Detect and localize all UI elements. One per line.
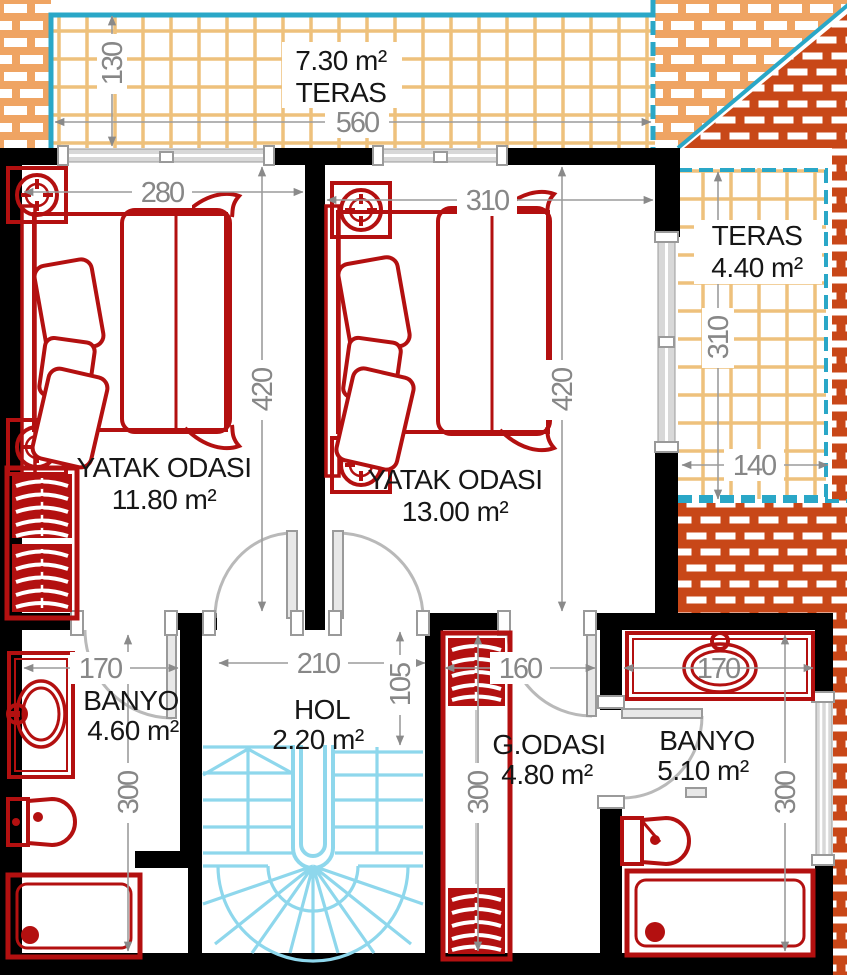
bathroom1-name: BANYO [83, 685, 179, 716]
bedroom1-area: 11.80 m² [112, 484, 217, 515]
dim-bathroom2-width: 170 [697, 653, 740, 685]
dim-hall-width: 210 [297, 648, 340, 680]
terrace-top-area: 7.30 m² [295, 45, 387, 76]
bathroom2-name: BANYO [659, 725, 755, 756]
dressing-room-name: G.ODASI [492, 729, 605, 760]
dim-bathroom1-depth: 300 [113, 771, 145, 814]
brick-strip-right-upper [832, 148, 847, 503]
floor-plan: 7.30 m² TERAS YATAK ODASI 11.80 m² YATAK… [0, 0, 847, 975]
dim-bedroom1-depth: 420 [247, 368, 279, 411]
dim-dressing-width: 160 [499, 653, 542, 685]
dim-terrace-top-depth: 130 [97, 42, 129, 85]
bedroom2-area: 13.00 m² [402, 496, 509, 527]
window-bedroom1-top [58, 146, 274, 165]
bathroom1-area: 4.60 m² [87, 715, 179, 746]
dim-bedroom2-width: 310 [466, 185, 509, 217]
window-bedroom2-top [373, 146, 507, 165]
dim-bedroom1-width: 280 [141, 177, 184, 209]
pillows-1 [30, 258, 109, 470]
toilet-2 [622, 818, 689, 864]
dim-terrace-right-depth: 310 [703, 316, 735, 359]
brick-area-top-left [0, 0, 51, 150]
hall-area: 2.20 m² [272, 724, 364, 755]
hall-name: HOL [294, 694, 350, 725]
stair-winder-rays [203, 866, 423, 953]
terrace-right-name: TERAS [712, 220, 803, 251]
dim-hall-depth: 105 [385, 663, 417, 706]
bedroom2-name: YATAK ODASI [368, 464, 543, 495]
window-bedroom2-terrace [655, 232, 678, 452]
brick-strip-right-lower [833, 616, 847, 975]
door-bedroom2 [329, 531, 429, 635]
terrace-top-name: TERAS [296, 77, 387, 108]
bedroom1-name: YATAK ODASI [77, 452, 252, 483]
bed-2 [326, 183, 554, 492]
bathroom2-area: 5.10 m² [657, 755, 749, 786]
staircase [203, 745, 423, 961]
stair-railing-inner [301, 745, 325, 856]
dim-terrace-right-width: 140 [733, 450, 776, 482]
terrace-right-area: 4.40 m² [711, 252, 803, 283]
bed-1 [8, 168, 239, 476]
dim-dressing-depth: 300 [463, 771, 495, 814]
dim-bedroom2-depth: 420 [547, 368, 579, 411]
dressing-room-area: 4.80 m² [501, 759, 593, 790]
door-bedroom1 [203, 531, 303, 635]
brick-area-below-terrace [677, 503, 847, 616]
dim-bathroom2-depth: 300 [770, 771, 802, 814]
window-bathroom2-right [812, 692, 834, 865]
pillows-2 [334, 255, 416, 471]
bathtub-1 [8, 875, 140, 957]
dim-terrace-top-width: 560 [336, 107, 379, 139]
dim-bathroom1-width: 170 [79, 653, 122, 685]
